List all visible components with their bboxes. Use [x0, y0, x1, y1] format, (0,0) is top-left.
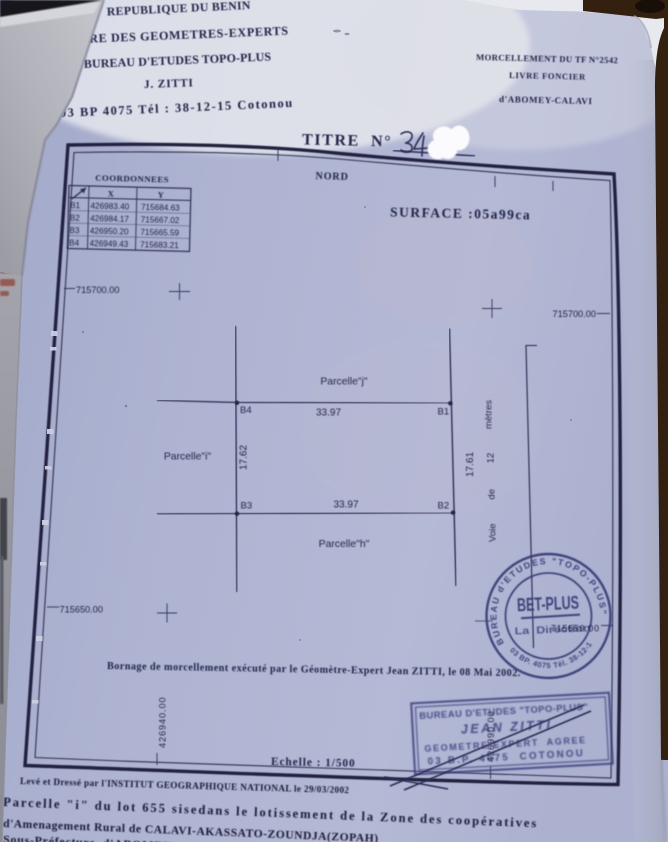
svg-text:de: de	[487, 489, 498, 500]
svg-text:BET-PLUS: BET-PLUS	[517, 592, 580, 616]
svg-text:B2: B2	[438, 501, 450, 512]
svg-text:B2: B2	[70, 214, 81, 223]
svg-text:Voie: Voie	[488, 523, 499, 542]
svg-text:Y: Y	[158, 190, 164, 200]
svg-text:B3: B3	[69, 226, 80, 235]
svg-text:SURFACE :05a99ca: SURFACE :05a99ca	[390, 205, 531, 223]
svg-text:d'ABOMEY-CALAVI: d'ABOMEY-CALAVI	[499, 94, 593, 106]
svg-text:B4: B4	[69, 239, 80, 248]
svg-text:TITRE N°: TITRE N°	[302, 132, 392, 151]
svg-text:715683.21: 715683.21	[140, 240, 179, 250]
svg-text:Parcelle"j": Parcelle"j"	[320, 377, 368, 388]
svg-text:426950.20: 426950.20	[90, 227, 129, 237]
svg-text:J. ZITTI: J. ZITTI	[144, 77, 194, 91]
svg-text:COORDONNEES: COORDONNEES	[95, 173, 169, 185]
svg-text:715650.00: 715650.00	[60, 605, 103, 615]
svg-text:33.97: 33.97	[316, 408, 341, 419]
svg-text:715700.00: 715700.00	[76, 285, 119, 295]
svg-text:mètres: mètres	[484, 400, 495, 429]
svg-text:17.61: 17.61	[465, 452, 476, 477]
svg-text:426949.43: 426949.43	[89, 239, 128, 249]
svg-text:426940.00: 426940.00	[158, 696, 168, 748]
svg-text:B4: B4	[240, 405, 252, 416]
svg-text:715700.00: 715700.00	[553, 309, 596, 319]
svg-text:12: 12	[486, 453, 497, 464]
svg-text:Echelle : 1/500: Echelle : 1/500	[271, 756, 356, 770]
svg-text:715684.63: 715684.63	[141, 203, 180, 213]
svg-text:LIVRE FONCIER: LIVRE FONCIER	[509, 70, 586, 82]
svg-text:Parcelle"i": Parcelle"i"	[164, 452, 212, 463]
svg-text:426983.40: 426983.40	[90, 202, 129, 212]
svg-text:715667.02: 715667.02	[141, 215, 180, 225]
svg-text:33.97: 33.97	[333, 500, 358, 511]
svg-text:715650.00: 715650.00	[551, 624, 600, 634]
svg-text:Parcelle"h": Parcelle"h"	[319, 539, 370, 550]
svg-text:426984.17: 426984.17	[90, 214, 129, 224]
svg-text:B1: B1	[70, 201, 81, 210]
svg-text:B1: B1	[438, 407, 450, 418]
svg-text:B3: B3	[241, 501, 253, 512]
svg-text:X: X	[108, 188, 115, 198]
svg-text:NORD: NORD	[315, 171, 348, 183]
svg-text:17.62: 17.62	[239, 445, 250, 470]
svg-text:715665.59: 715665.59	[140, 228, 179, 238]
